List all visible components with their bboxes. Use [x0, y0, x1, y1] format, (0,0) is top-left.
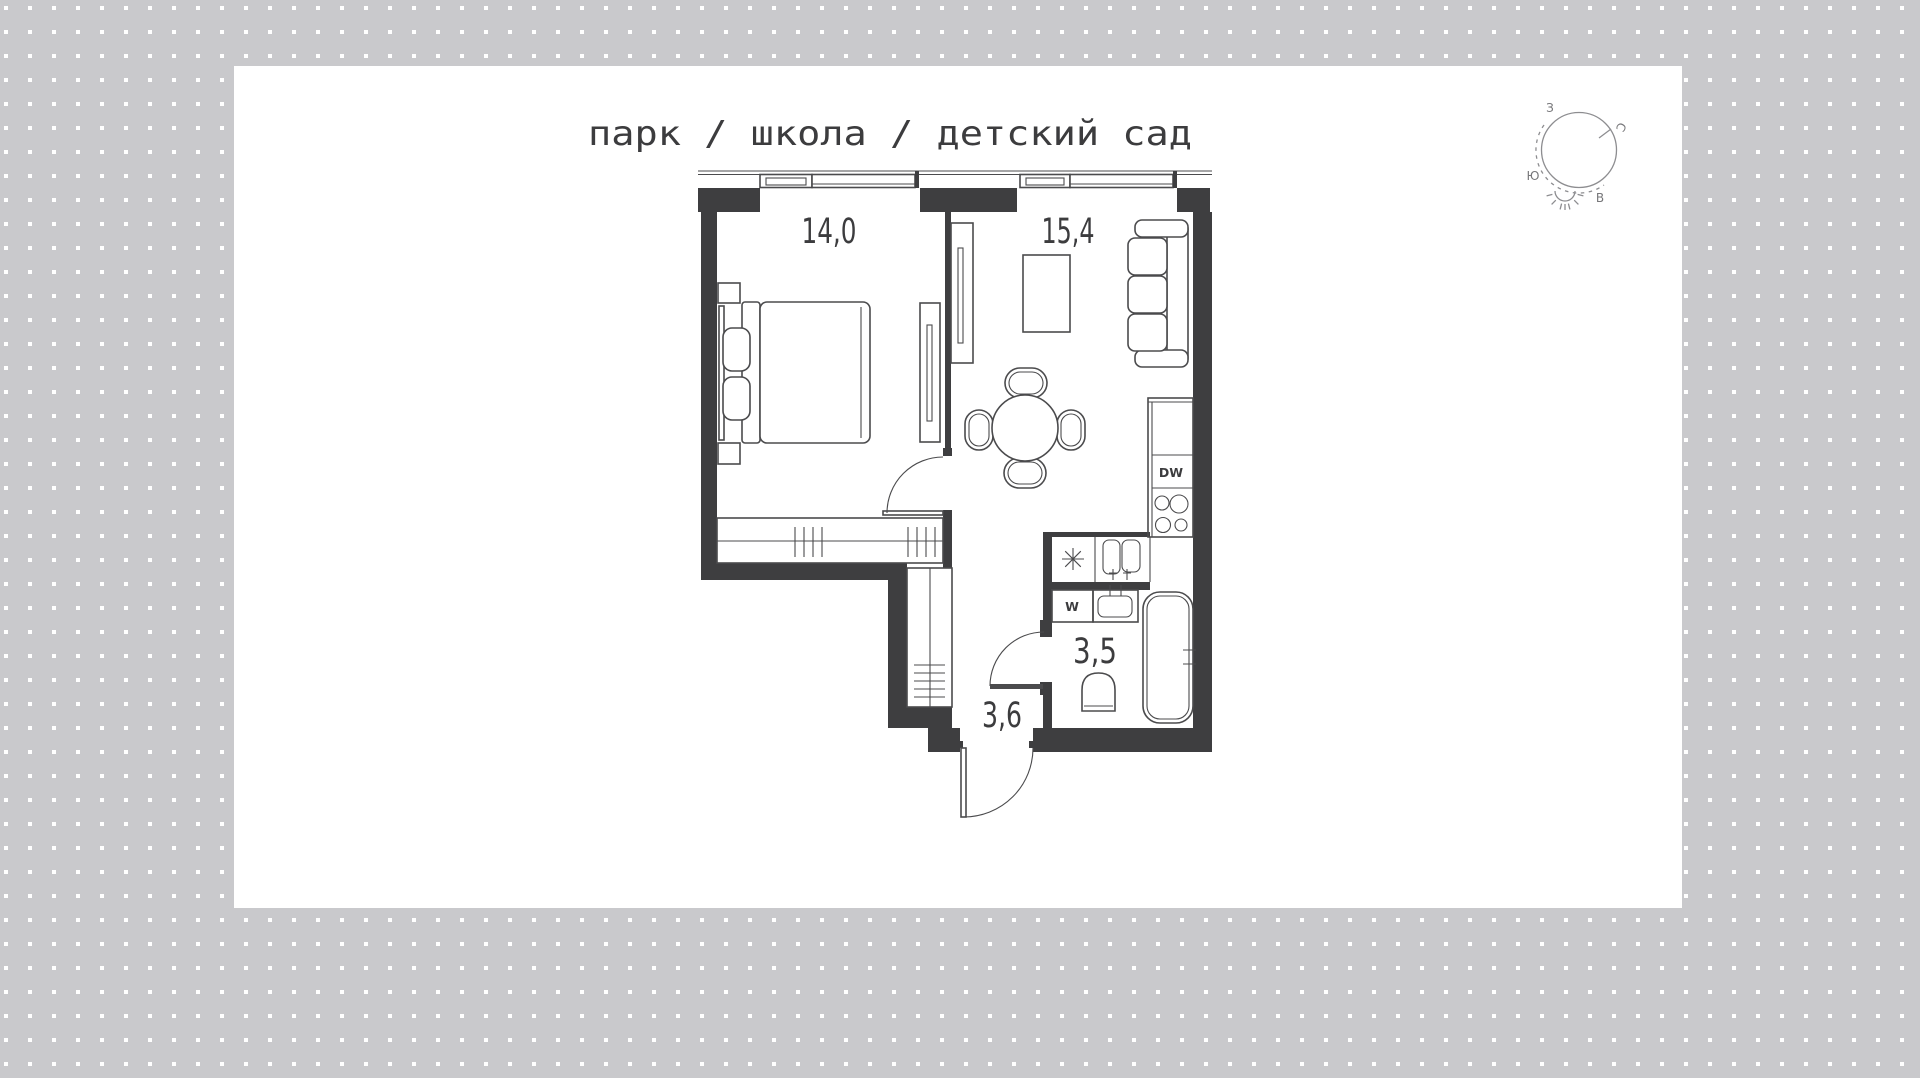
toilet: [1082, 673, 1115, 711]
bathtub: [1143, 592, 1196, 723]
plan-title: парк / школа / детский сад: [588, 114, 1192, 154]
sofa: [1128, 220, 1188, 367]
dining-chair: [1057, 410, 1085, 450]
compass-west-label: З: [1546, 101, 1554, 115]
utility-asterisk-icon: [1062, 548, 1084, 570]
hall-closet: [907, 568, 952, 707]
bathroom-door: [990, 632, 1044, 689]
nightstand: [718, 283, 740, 303]
compass-east-label: В: [1596, 191, 1604, 205]
tv-panel: [951, 223, 973, 363]
nightstand: [718, 443, 740, 464]
pillow: [723, 328, 750, 371]
living-area-label: 15,4: [1042, 212, 1095, 252]
bathroom-area-label: 3,5: [1073, 632, 1117, 672]
living-room-window: [1020, 175, 1173, 188]
bedroom-wardrobe: [717, 518, 943, 563]
stove-burners: [1155, 495, 1188, 533]
dishwasher-label: DW: [1159, 465, 1183, 480]
sink: [1093, 585, 1138, 622]
bedroom-window: [760, 175, 915, 188]
dining-chair: [1004, 458, 1046, 488]
bedroom-area-label: 14,0: [802, 212, 857, 252]
compass-south-label: Ю: [1527, 169, 1540, 183]
washer-label: W: [1065, 599, 1079, 614]
entry-door: [961, 748, 1033, 817]
bedroom-dresser: [920, 303, 940, 442]
compass-north-label: С: [1613, 120, 1629, 134]
sun-icon: [1547, 191, 1584, 210]
dining-chair: [965, 410, 993, 450]
coffee-table: [1023, 255, 1070, 332]
floor-plan: З С Ю В парк / школа / детский сад 14,0 …: [0, 0, 1920, 1078]
pillow: [723, 377, 750, 420]
hallway-area-label: 3,6: [982, 696, 1022, 736]
compass-north-tick: [1599, 129, 1611, 138]
utility-niche: [1062, 537, 1150, 582]
dining-chair: [1005, 368, 1047, 398]
bedroom-door: [883, 457, 943, 515]
compass-dashed-arc: [1536, 125, 1604, 193]
dining-table: [992, 395, 1058, 461]
bed: [718, 283, 870, 464]
compass-rose: З С Ю В: [1527, 101, 1630, 210]
dining-set: [965, 368, 1085, 488]
